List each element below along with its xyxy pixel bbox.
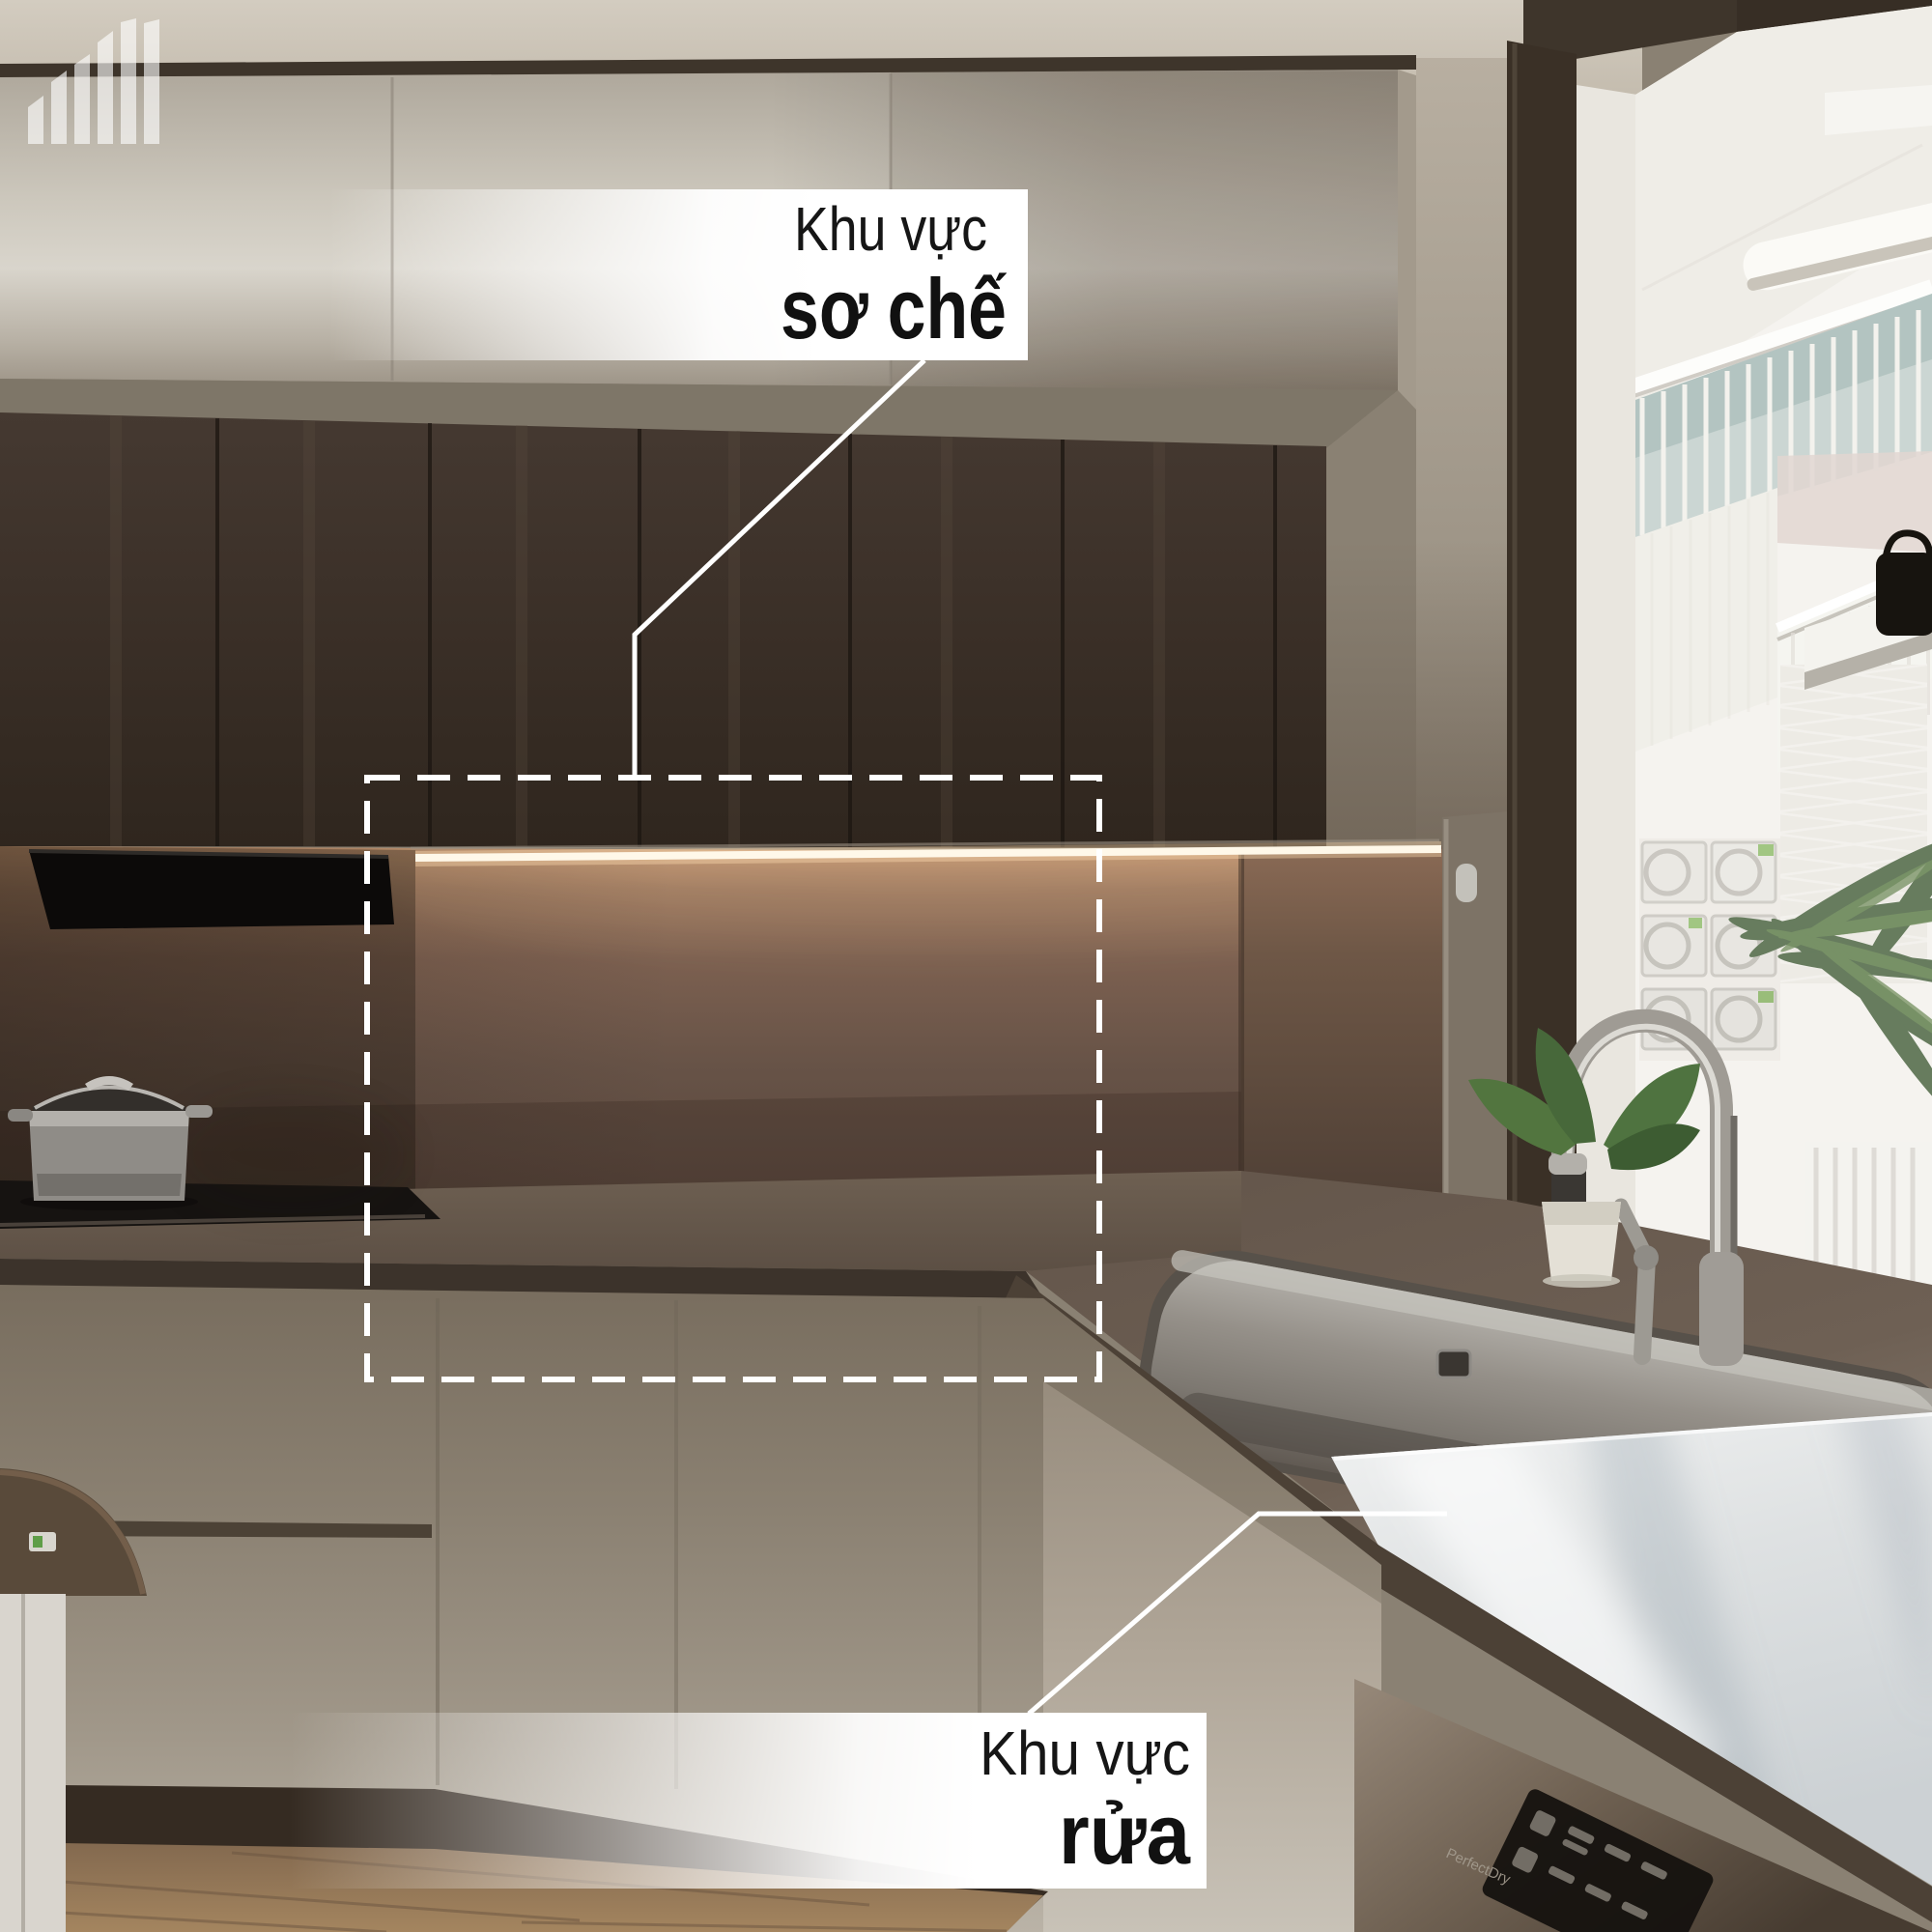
svg-text:sơ chế: sơ chế [781, 261, 1008, 356]
svg-text:Khu vực: Khu vực [980, 1719, 1190, 1788]
svg-text:rửa: rửa [1059, 1786, 1191, 1882]
svg-text:Khu vực: Khu vực [794, 194, 987, 264]
